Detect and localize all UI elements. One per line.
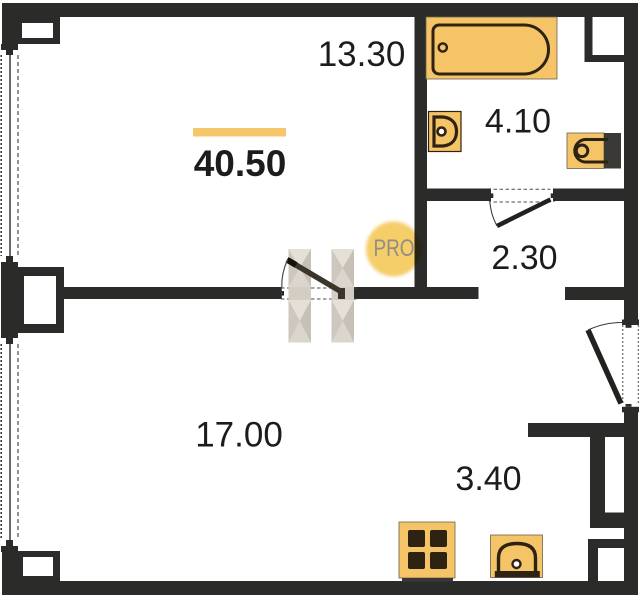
svg-text:PRO: PRO <box>374 235 415 262</box>
svg-text:2.30: 2.30 <box>491 239 557 277</box>
svg-text:13.30: 13.30 <box>318 35 406 74</box>
svg-text:3.40: 3.40 <box>455 460 521 498</box>
svg-text:40.50: 40.50 <box>194 143 287 184</box>
svg-text:17.00: 17.00 <box>195 416 283 455</box>
svg-text:4.10: 4.10 <box>485 103 551 141</box>
